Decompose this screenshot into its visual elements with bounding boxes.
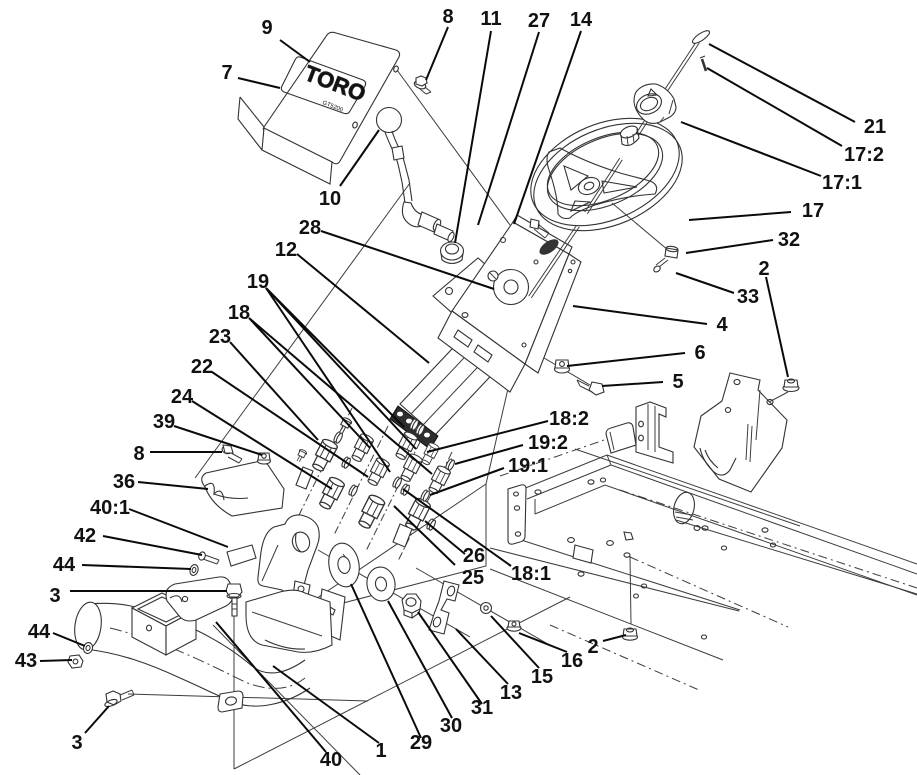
svg-text:28: 28 [299,217,321,239]
svg-text:19:1: 19:1 [508,455,548,477]
svg-text:7: 7 [221,62,232,84]
svg-text:17: 17 [802,200,824,222]
svg-text:4: 4 [716,314,728,336]
svg-text:17:1: 17:1 [822,172,862,194]
svg-text:14: 14 [570,9,593,31]
svg-text:2: 2 [587,636,598,658]
svg-text:5: 5 [672,371,683,393]
svg-text:8: 8 [442,6,453,28]
svg-text:18: 18 [228,302,250,324]
svg-text:22: 22 [191,356,213,378]
svg-text:39: 39 [153,411,175,433]
svg-text:43: 43 [15,650,37,672]
svg-text:18:2: 18:2 [549,408,589,430]
svg-text:19:2: 19:2 [528,432,568,454]
svg-text:16: 16 [561,650,583,672]
svg-text:25: 25 [462,567,484,589]
svg-text:9: 9 [261,17,272,39]
svg-text:33: 33 [737,286,759,308]
svg-text:32: 32 [778,229,800,251]
svg-text:40: 40 [320,749,342,771]
svg-text:11: 11 [480,8,501,30]
svg-text:3: 3 [71,732,82,754]
svg-text:29: 29 [410,732,432,754]
svg-text:26: 26 [463,545,485,567]
svg-text:10: 10 [319,188,341,210]
svg-text:12: 12 [275,239,297,261]
svg-text:1: 1 [375,740,386,762]
svg-text:13: 13 [500,682,522,704]
svg-text:18:1: 18:1 [511,563,551,585]
svg-text:17:2: 17:2 [844,144,884,166]
svg-text:36: 36 [113,471,135,493]
svg-text:8: 8 [133,443,144,465]
svg-text:21: 21 [864,116,886,138]
svg-text:27: 27 [528,10,550,32]
svg-text:3: 3 [49,585,60,607]
svg-text:44: 44 [53,554,76,576]
svg-text:2: 2 [758,258,769,280]
svg-text:31: 31 [471,697,493,719]
svg-text:30: 30 [440,715,462,737]
svg-text:15: 15 [531,666,553,688]
svg-text:19: 19 [247,271,269,293]
svg-text:24: 24 [171,386,194,408]
svg-text:42: 42 [74,525,96,547]
svg-text:44: 44 [28,621,51,643]
svg-text:23: 23 [209,326,231,348]
svg-text:40:1: 40:1 [90,497,130,519]
svg-text:6: 6 [694,342,705,364]
